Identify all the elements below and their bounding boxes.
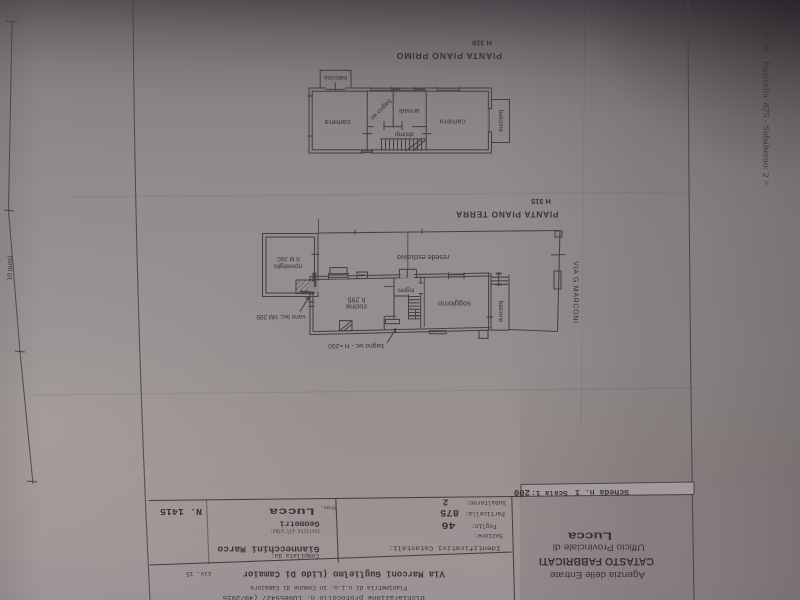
svg-text:Foglio:: Foglio:: [471, 522, 496, 529]
svg-text:civ. 15: civ. 15: [186, 570, 212, 577]
svg-text:Subalterno:: Subalterno:: [466, 499, 506, 506]
svg-text:Dichiarazione protocollo n. LU: Dichiarazione protocollo n. LU0055427 (4…: [222, 594, 424, 600]
svg-text:Scheda n. 1: Scheda n. 1: [575, 487, 629, 497]
svg-text:Planimetria di u.i.u. in Comun: Planimetria di u.i.u. in Comune di Camai…: [250, 584, 407, 591]
svg-text:soggiorno: soggiorno: [438, 300, 471, 309]
svg-text:cald: cald: [359, 273, 365, 277]
svg-text:h 295: h 295: [348, 295, 366, 304]
svg-text:Lucca: Lucca: [567, 530, 612, 542]
svg-text:vano tec. hM 295: vano tec. hM 295: [256, 313, 305, 320]
svg-text:Iscritto all'albo:: Iscritto all'albo:: [270, 527, 320, 533]
svg-text:H 310: H 310: [472, 39, 492, 48]
svg-text:resede esclusivo: resede esclusivo: [397, 253, 449, 260]
svg-text:ripostêglio: ripostêglio: [273, 262, 302, 269]
svg-text:N. 1415: N. 1415: [160, 506, 202, 517]
svg-text:camera: camera: [439, 118, 466, 127]
svg-text:Agenzia delle Entrate: Agenzia delle Entrate: [550, 570, 645, 580]
svg-text:10 metri: 10 metri: [5, 255, 14, 280]
svg-text:Scala 1:: Scala 1:: [531, 488, 567, 496]
svg-text:ingres: ingres: [398, 287, 414, 293]
svg-text:Compilata da:: Compilata da:: [271, 552, 319, 559]
svg-text:Sezione:: Sezione:: [474, 532, 503, 539]
svg-text:Geometri: Geometri: [280, 519, 320, 529]
svg-text:Prov.: Prov.: [320, 504, 336, 510]
svg-text:200: 200: [514, 487, 530, 497]
svg-text:balcone: balcone: [497, 301, 504, 323]
svg-text:camera: camera: [324, 118, 351, 127]
svg-text:PIANTA PIANO PRIMO: PIANTA PIANO PRIMO: [396, 51, 502, 61]
svg-text:< Foglio: 46 - Particella: 875: < Foglio: 46 - Particella: 875 - Subalte…: [762, 5, 771, 187]
svg-text:balcone: balcone: [497, 110, 504, 133]
svg-text:Particella:: Particella:: [465, 510, 505, 517]
svg-text:balcone: balcone: [324, 74, 347, 81]
svg-text:Identificativi Catastali:: Identificativi Catastali:: [389, 545, 501, 552]
svg-text:H 315: H 315: [531, 197, 551, 206]
svg-text:Lucca: Lucca: [269, 505, 315, 516]
svg-text:875: 875: [440, 507, 459, 518]
svg-text:46: 46: [441, 520, 455, 531]
svg-text:armadi: armadi: [399, 107, 420, 114]
svg-text:CATASTO FABBRICATI: CATASTO FABBRICATI: [539, 555, 654, 567]
svg-text:bagno wc - H =250: bagno wc - H =250: [328, 342, 384, 349]
svg-text:bagno wc: bagno wc: [368, 97, 393, 122]
svg-text:2: 2: [442, 497, 448, 508]
svg-text:Ufficio Provinciale di: Ufficio Provinciale di: [553, 542, 645, 552]
svg-text:disimp: disimp: [395, 130, 414, 137]
svg-text:PIANTA PIANO TERRA: PIANTA PIANO TERRA: [456, 210, 559, 220]
svg-text:VIA G.MARCONI: VIA G.MARCONI: [572, 261, 581, 324]
svg-text:h M 260: h M 260: [277, 255, 300, 262]
svg-text:Via Marconi Guglielmo (Lido Di: Via Marconi Guglielmo (Lido Di Camaior: [243, 569, 445, 579]
